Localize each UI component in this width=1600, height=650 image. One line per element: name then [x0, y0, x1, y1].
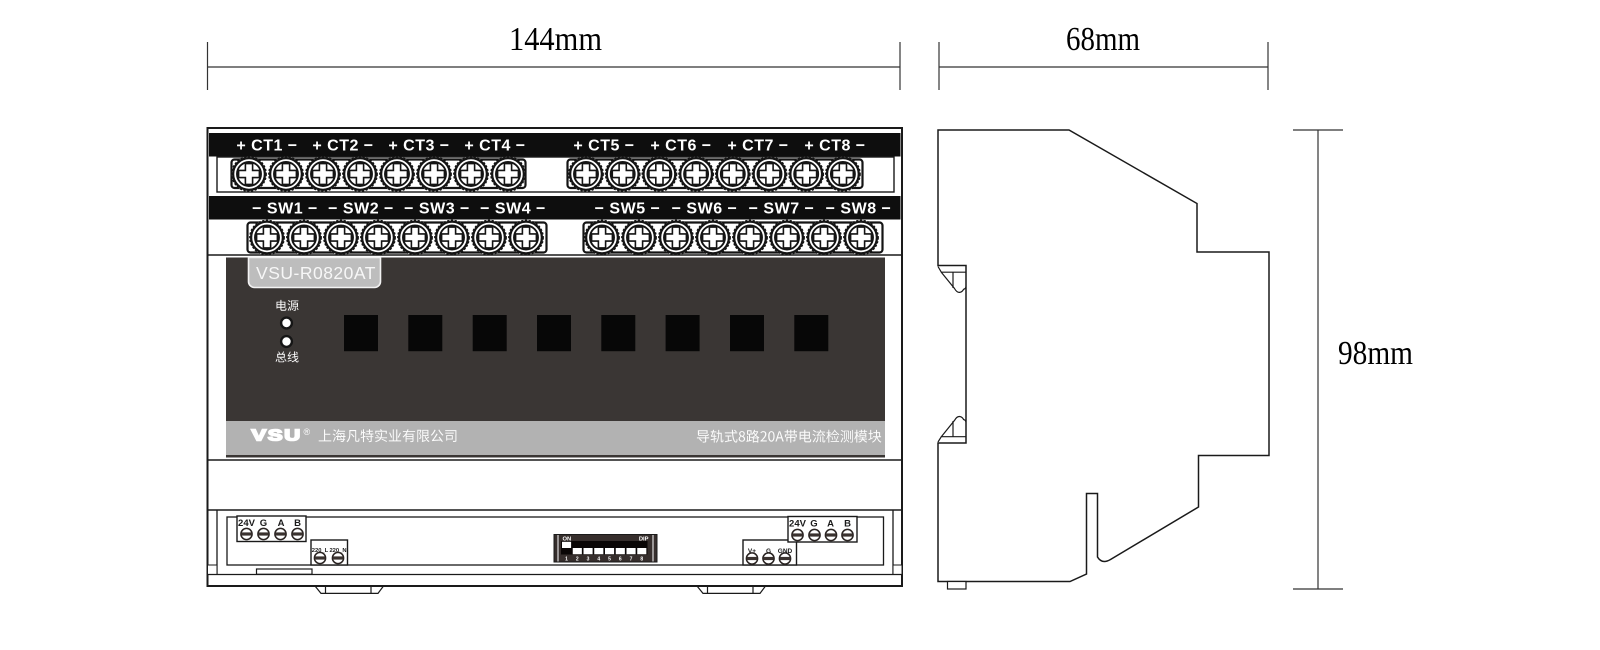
svg-text:− SW4 −: − SW4 − — [480, 201, 546, 218]
svg-text:8: 8 — [640, 557, 643, 563]
svg-text:®: ® — [304, 427, 311, 437]
svg-text:− SW5 −: − SW5 − — [595, 201, 661, 218]
svg-text:+ CT2 −: + CT2 − — [312, 138, 373, 155]
svg-text:3: 3 — [587, 557, 590, 563]
svg-text:6: 6 — [619, 557, 622, 563]
svg-text:1: 1 — [565, 557, 568, 563]
svg-text:− SW7 −: − SW7 − — [749, 201, 815, 218]
svg-text:144mm: 144mm — [509, 21, 602, 58]
svg-text:+ CT4 −: + CT4 − — [464, 138, 525, 155]
svg-text:− SW2 −: − SW2 − — [328, 201, 394, 218]
svg-text:+ CT1 −: + CT1 − — [236, 138, 297, 155]
svg-text:− SW6 −: − SW6 − — [672, 201, 738, 218]
svg-text:4: 4 — [597, 557, 600, 563]
svg-text:7: 7 — [630, 557, 633, 563]
svg-text:+ CT3 −: + CT3 − — [388, 138, 449, 155]
svg-text:98mm: 98mm — [1338, 335, 1413, 372]
svg-text:A: A — [827, 519, 834, 530]
svg-text:− SW8 −: − SW8 − — [826, 201, 892, 218]
svg-text:68mm: 68mm — [1066, 21, 1140, 58]
svg-text:G: G — [260, 518, 267, 529]
svg-text:B: B — [844, 519, 851, 530]
svg-text:24V: 24V — [789, 519, 807, 530]
svg-text:2: 2 — [576, 557, 579, 563]
svg-text:− SW3 −: − SW3 − — [404, 201, 470, 218]
svg-text:24V: 24V — [238, 518, 256, 529]
svg-text:5: 5 — [608, 557, 611, 563]
svg-text:+ CT5 −: + CT5 − — [573, 138, 634, 155]
svg-text:A: A — [278, 518, 285, 529]
svg-text:VSU: VSU — [252, 427, 302, 444]
svg-text:+ CT8 −: + CT8 − — [804, 138, 865, 155]
svg-text:+ CT7 −: + CT7 − — [727, 138, 788, 155]
svg-text:B: B — [294, 518, 301, 529]
svg-text:G: G — [810, 519, 817, 530]
svg-text:+ CT6 −: + CT6 − — [650, 138, 711, 155]
svg-text:− SW1 −: − SW1 − — [252, 201, 318, 218]
svg-text:VSU-R0820AT: VSU-R0820AT — [256, 263, 376, 283]
